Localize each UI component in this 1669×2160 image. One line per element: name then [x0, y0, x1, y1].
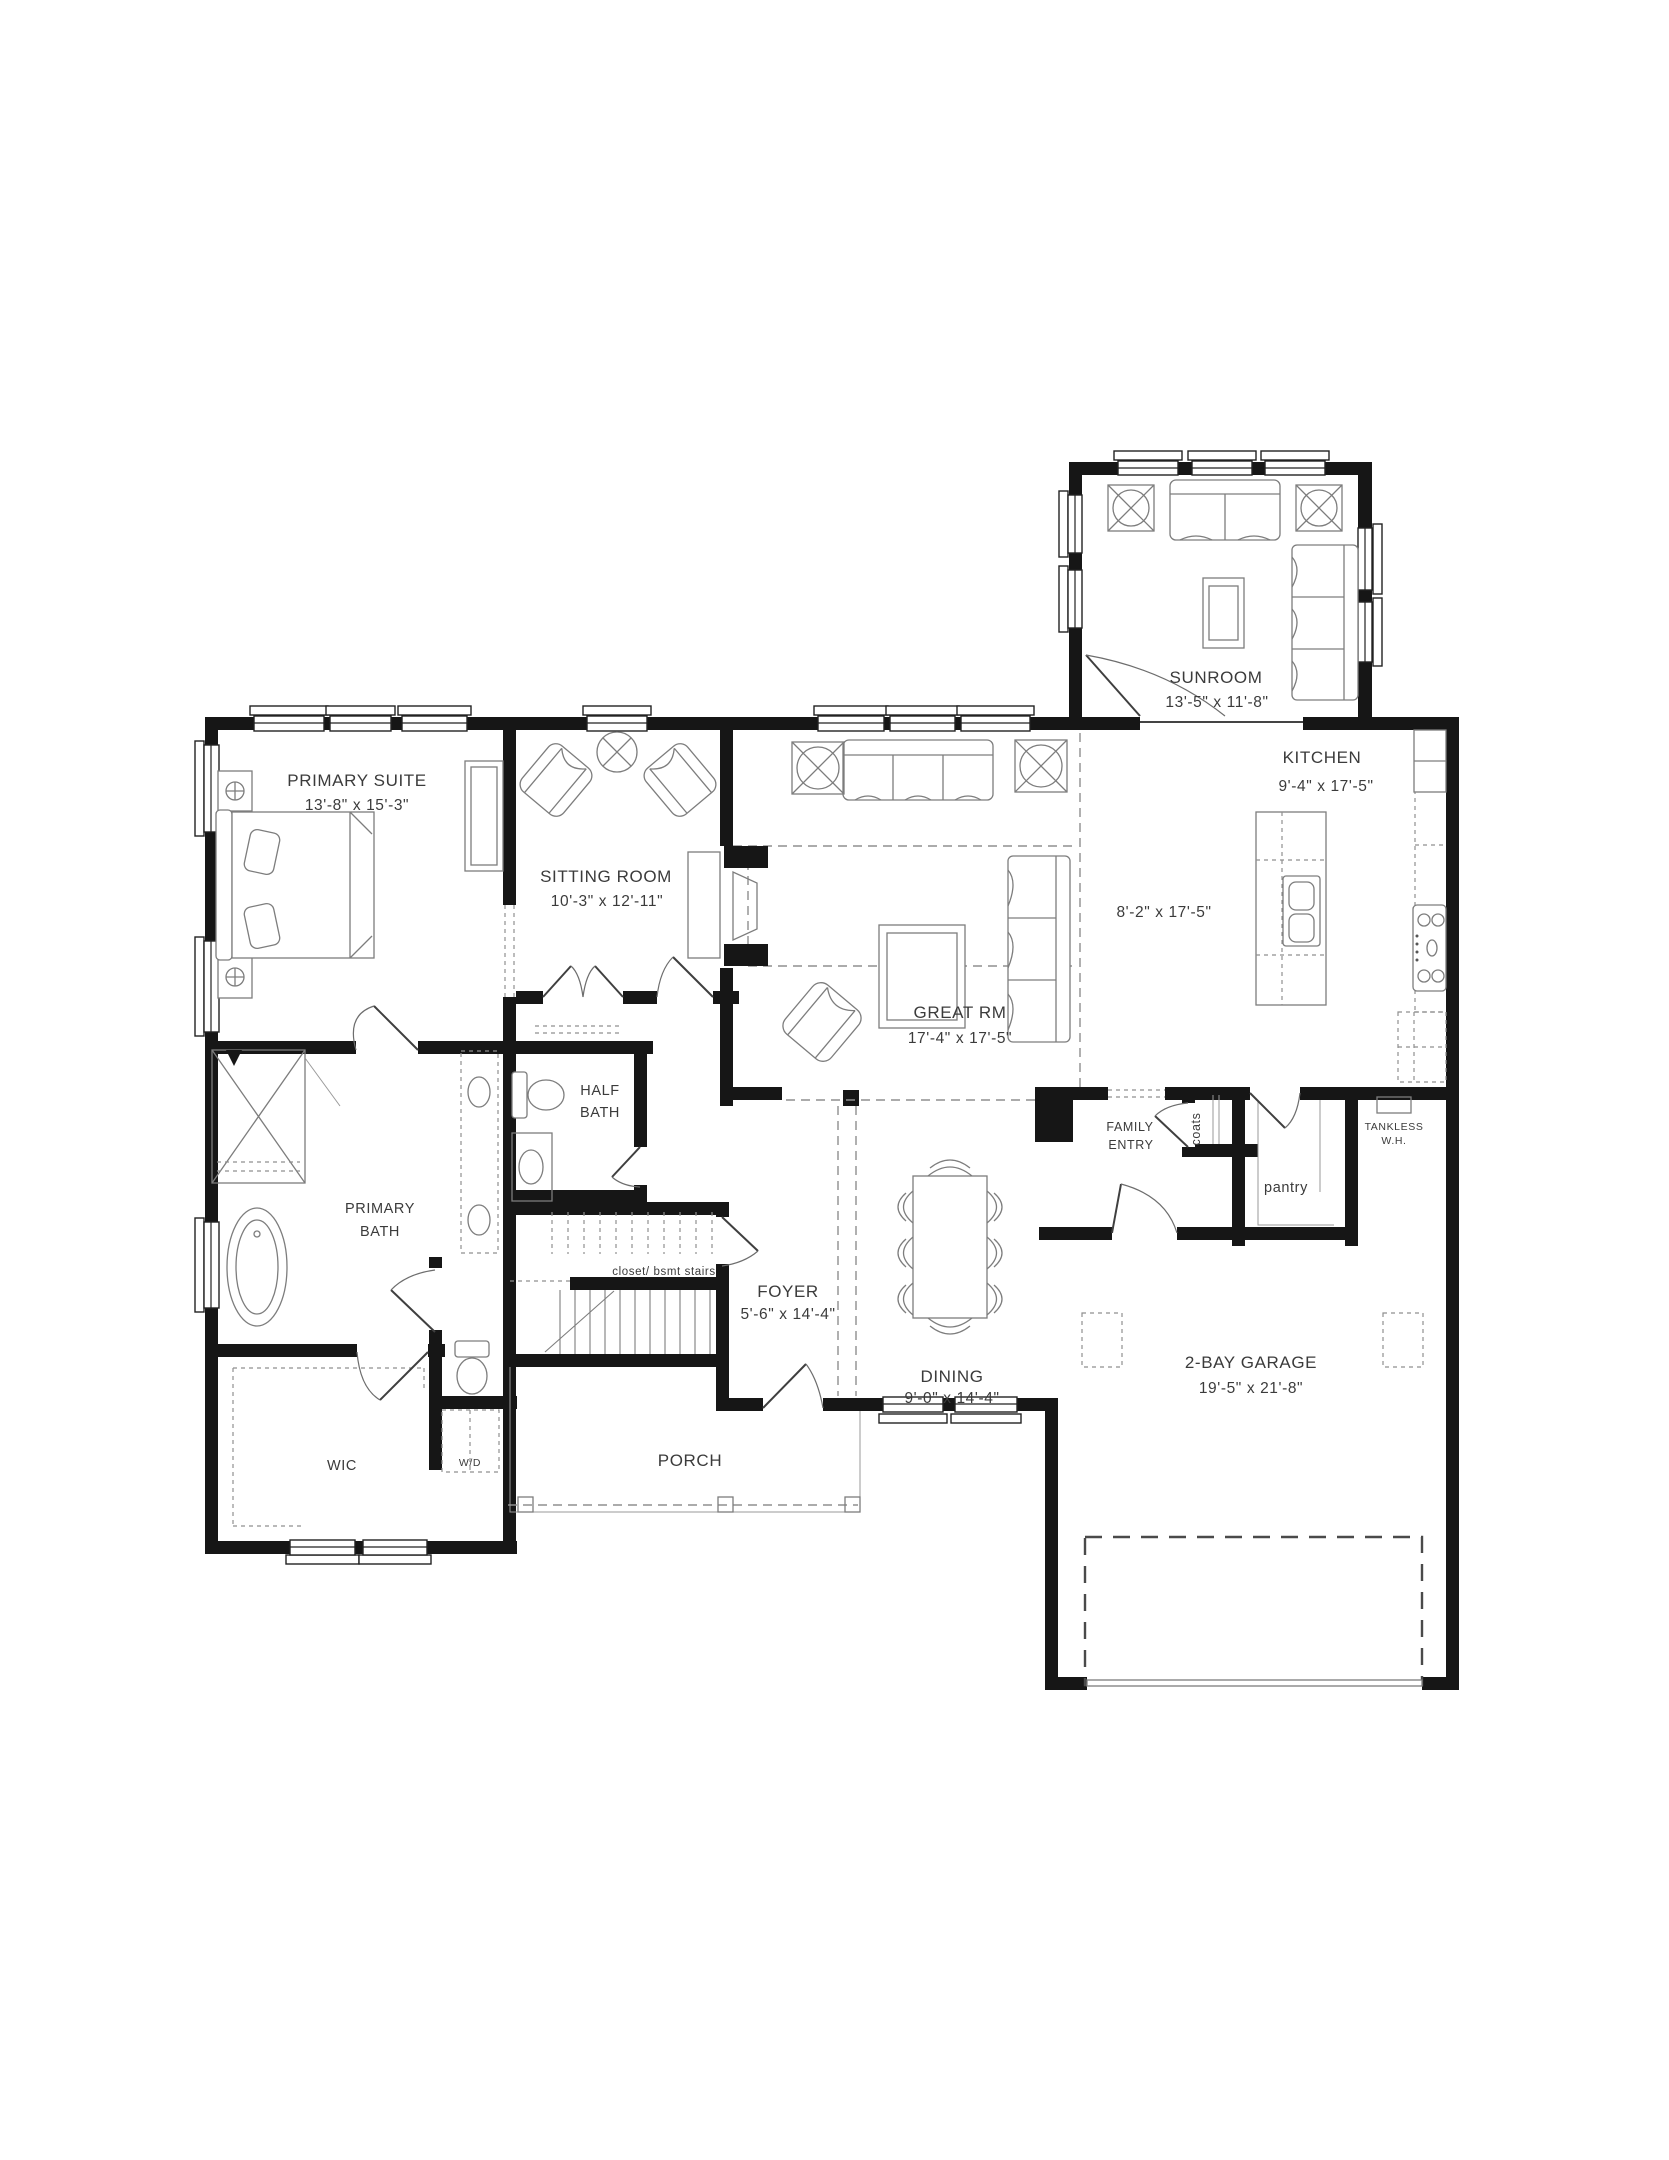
room-dims-dining: 9'-0" x 14'-4" — [904, 1390, 999, 1407]
garage-door — [1087, 1680, 1422, 1686]
porch-structure — [510, 1367, 860, 1512]
garage-post — [1383, 1313, 1423, 1367]
door-swing — [722, 1217, 758, 1266]
side-table-icon — [597, 732, 637, 772]
armchair-icon — [516, 740, 596, 821]
room-label-half-bath-2: BATH — [580, 1105, 620, 1121]
room-label-porch: PORCH — [658, 1451, 722, 1470]
tankless-label-2: W.H. — [1381, 1135, 1406, 1147]
bathtub-icon — [227, 1208, 287, 1326]
room-label-primary-suite: PRIMARY SUITE — [287, 771, 426, 790]
coat-rod — [1213, 1095, 1219, 1144]
ceiling-fan-icon — [792, 742, 844, 794]
dining-table — [898, 1160, 1002, 1334]
shower-icon — [212, 1050, 340, 1183]
door-swing — [612, 1147, 640, 1187]
garage-apron — [1085, 1537, 1422, 1685]
dresser-icon — [465, 761, 503, 871]
cooktop-icon — [1413, 905, 1446, 991]
ceiling-fan-icon — [1296, 485, 1342, 531]
floor-plan-page: PRIMARY SUITE 13'-8" x 15'-3" SITTING RO… — [0, 0, 1669, 2160]
room-label-dining: DINING — [920, 1367, 983, 1386]
room-label-garage: 2-BAY GARAGE — [1185, 1353, 1317, 1372]
room-label-wic: WIC — [327, 1458, 357, 1474]
door-swing — [1112, 1184, 1177, 1233]
room-dims-great-rm: 17'-4" x 17'-5" — [908, 1030, 1012, 1047]
kitchen-counter — [1398, 730, 1446, 1082]
kitchen-island — [1256, 812, 1326, 1005]
sectional-sofa-icon — [1008, 856, 1070, 1042]
tankless-label-1: TANKLESS — [1365, 1121, 1424, 1133]
sink-icon — [468, 1077, 490, 1107]
room-dims-kitchen: 9'-4" x 17'-5" — [1278, 778, 1373, 795]
pantry-label: pantry — [1264, 1180, 1308, 1196]
sink-icon — [519, 1150, 543, 1184]
room-label-primary-bath-2: BATH — [360, 1224, 400, 1240]
room-dims-sunroom: 13'-5" x 11'-8" — [1165, 694, 1268, 711]
floor-plan: PRIMARY SUITE 13'-8" x 15'-3" SITTING RO… — [0, 0, 1669, 2160]
refrigerator-icon — [1414, 730, 1446, 792]
room-dims-primary-suite: 13'-8" x 15'-3" — [305, 797, 409, 814]
toilet-icon — [512, 1072, 564, 1118]
sofa-icon — [843, 740, 993, 800]
room-label-sitting-room: SITTING ROOM — [540, 867, 672, 886]
stair-closet-label: closet/ bsmt stairs — [612, 1266, 715, 1278]
garage-post — [1082, 1313, 1122, 1367]
room-label-family-entry-2: ENTRY — [1108, 1138, 1153, 1152]
room-label-sunroom: SUNROOM — [1170, 668, 1263, 687]
room-dims-sitting-room: 10'-3" x 12'-11" — [551, 893, 663, 910]
room-dims-garage: 19'-5" x 21'-8" — [1199, 1380, 1303, 1397]
toilet-icon — [455, 1341, 489, 1394]
armchair-icon — [778, 978, 865, 1066]
armchair-icon — [640, 740, 720, 821]
pantry-shelves — [1258, 1100, 1334, 1225]
room-label-foyer: FOYER — [757, 1282, 819, 1301]
room-dims-foyer: 5'-6" x 14'-4" — [740, 1306, 835, 1323]
walls — [205, 462, 1459, 1690]
sink-icon — [468, 1205, 490, 1235]
washer-dryer-label: W/D — [459, 1457, 481, 1469]
sectional-sofa-icon — [1292, 545, 1358, 700]
ceiling-fan-icon — [1108, 485, 1154, 531]
room-label-family-entry-1: FAMILY — [1106, 1120, 1153, 1134]
door-swing — [391, 1270, 435, 1332]
ceiling-fan-icon — [1015, 740, 1067, 792]
room-label-kitchen: KITCHEN — [1283, 748, 1362, 767]
double-vanity — [461, 1051, 498, 1253]
coats-label: coats — [1189, 1113, 1203, 1146]
room-label-half-bath-1: HALF — [580, 1083, 619, 1099]
door-swing — [357, 1352, 428, 1400]
coffee-table-icon — [1203, 578, 1244, 648]
room-label-great-rm: GREAT RM — [914, 1003, 1007, 1022]
loveseat-icon — [1170, 480, 1280, 540]
kitchen-aisle-dims: 8'-2" x 17'-5" — [1116, 904, 1211, 921]
room-label-primary-bath-1: PRIMARY — [345, 1201, 415, 1217]
